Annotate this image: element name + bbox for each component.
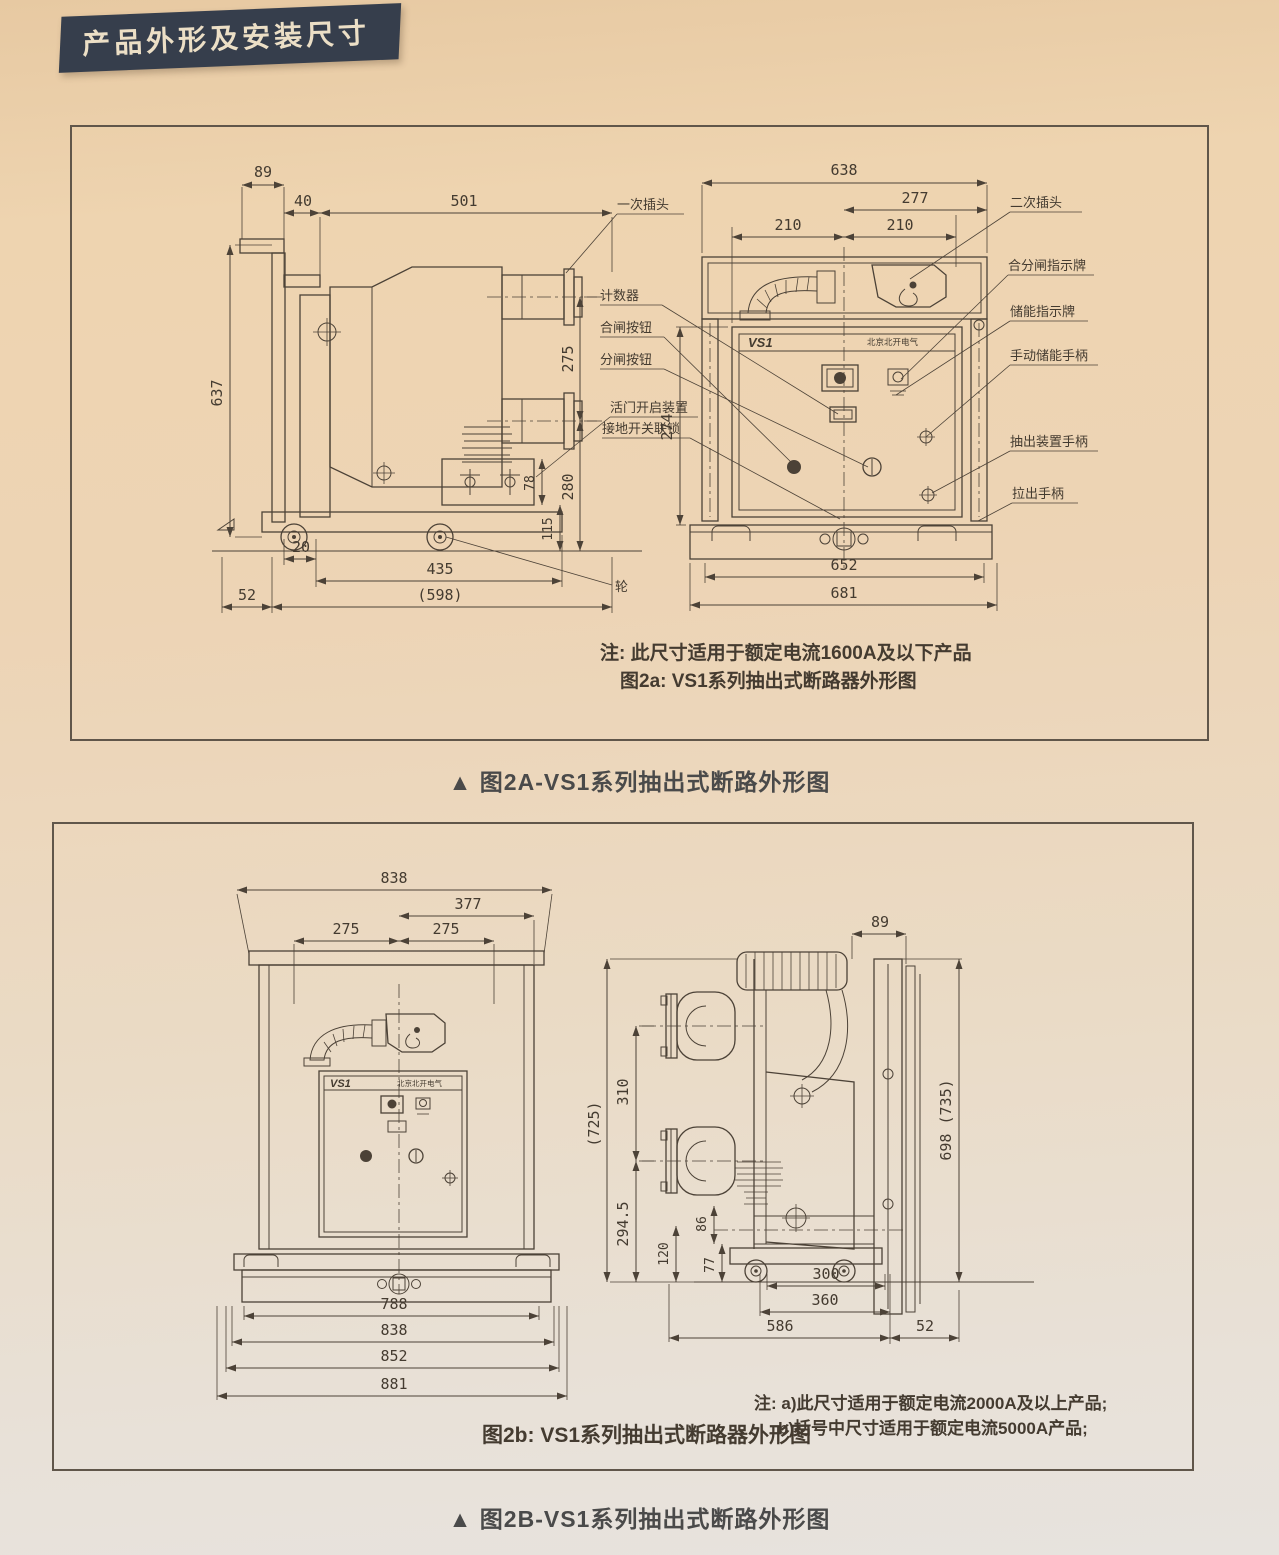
label-secondary-plug: 二次插头	[1010, 195, 1062, 210]
dim-86: 86	[695, 1216, 710, 1232]
figure-2b-frame: 838 377 275 275	[52, 822, 1194, 1471]
catalog-page: 产品外形及安装尺寸	[0, 0, 1279, 1555]
label-primary-plug: 一次插头	[617, 197, 669, 212]
fig2b-inner-caption: 图2b: VS1系列抽出式断路器外形图	[482, 1423, 811, 1447]
dim-698-735: 698 (735)	[937, 1079, 955, 1160]
panel-brand-b: 北京北开电气	[397, 1078, 442, 1088]
dim-725: (725)	[585, 1101, 603, 1146]
dim-210-left: 210	[774, 216, 801, 234]
fig2b-lower-bushing	[642, 1127, 766, 1195]
panel-brand: 北京北开电气	[867, 337, 919, 347]
dim-501: 501	[450, 192, 477, 210]
label-charge-indicator: 储能指示牌	[1010, 304, 1075, 319]
dim-40: 40	[294, 192, 312, 210]
label-wheel: 轮	[446, 537, 628, 594]
panel-logo: VS1	[748, 335, 773, 350]
dim-52: 52	[238, 586, 256, 604]
figure-2a-caption: ▲ 图2A-VS1系列抽出式断路外形图	[0, 763, 1279, 797]
label-open-button: 分闸按钮	[600, 352, 652, 367]
dim-120: 120	[657, 1242, 672, 1265]
fig2b-plug	[386, 1014, 445, 1052]
section-title-banner: 产品外形及安装尺寸	[59, 3, 401, 73]
fig2a-side-dimensions: 89 40 501 637 275 280 78	[208, 163, 612, 613]
dim-788: 788	[380, 1295, 407, 1313]
figure-2b-caption: ▲ 图2B-VS1系列抽出式断路外形图	[0, 1500, 1279, 1534]
fig2b-side-vertical-dimensions: (725) 310 294.5 86 120 77 698 (735)	[585, 959, 962, 1282]
dim-52-b: 52	[916, 1317, 934, 1335]
dim-115: 115	[541, 517, 556, 540]
fig2a-right-labels: 二次插头 合分闸指示牌 储能指示牌 手动储能手柄 抽出装置手柄 拉出手柄	[896, 195, 1098, 521]
fig2a-insulator-ribs	[462, 427, 512, 462]
fig2b-chassis	[694, 1248, 1034, 1282]
dim-78: 78	[523, 475, 538, 491]
fig2a-base	[690, 525, 992, 559]
fig2a-front-view: VS1 北京北开电气	[658, 161, 997, 611]
label-counter: 计数器	[600, 288, 639, 303]
fig2a-note-line1: 注: 此尺寸适用于额定电流1600A及以下产品	[600, 641, 972, 664]
dim-77: 77	[703, 1257, 718, 1273]
section-title: 产品外形及安装尺寸	[81, 11, 370, 63]
fig2b-note-line1: 注: a)此尺寸适用于额定电流2000A及以上产品;	[754, 1393, 1107, 1413]
label-pullout-handle: 拉出手柄	[1012, 486, 1064, 501]
label-close-button: 合闸按钮	[600, 320, 652, 335]
fig2a-bolt-marks	[460, 469, 520, 495]
label-withdraw-device-handle: 抽出装置手柄	[1010, 434, 1088, 449]
figure-2b-drawing: 838 377 275 275	[54, 824, 1188, 1465]
dim-280: 280	[559, 473, 577, 500]
figure-2a-frame: 89 40 501 637 275 280 78	[70, 125, 1209, 741]
dim-275-right: 275	[432, 920, 459, 938]
fig2b-note-line2: b)括号中尺寸适用于额定电流5000A产品;	[778, 1418, 1088, 1438]
dim-377: 377	[454, 895, 481, 913]
fig2b-front-bottom-dimensions: 788 838 852 881	[217, 1295, 567, 1400]
fig2a-note-line2: 图2a: VS1系列抽出式断路器外形图	[620, 669, 917, 692]
dim-275: 275	[559, 345, 577, 372]
fig2b-upper-bushing	[642, 992, 766, 1060]
dim-638: 638	[830, 161, 857, 179]
dim-360: 360	[811, 1291, 838, 1309]
fig2a-panel-controls	[787, 365, 937, 504]
dim-89-b: 89	[871, 913, 889, 931]
dim-20: 20	[292, 538, 310, 556]
dim-637: 637	[208, 379, 226, 406]
dim-435: 435	[426, 560, 453, 578]
label-manual-charge-handle: 手动储能手柄	[1010, 348, 1088, 363]
dim-838-top: 838	[380, 869, 407, 887]
panel-logo-b: VS1	[330, 1078, 351, 1090]
dim-852: 852	[380, 1347, 407, 1365]
dim-210-right: 210	[886, 216, 913, 234]
fig2b-corrugations	[735, 1162, 783, 1204]
dim-275-left: 275	[332, 920, 359, 938]
label-close-open-indicator: 合分闸指示牌	[1008, 258, 1086, 273]
dim-881: 881	[380, 1375, 407, 1393]
dim-300: 300	[812, 1265, 839, 1283]
dim-310: 310	[614, 1078, 632, 1105]
fig2b-side-view: 89	[585, 913, 1034, 1344]
dim-294-5: 294.5	[614, 1201, 632, 1246]
dim-89: 89	[254, 163, 272, 181]
dim-652: 652	[830, 556, 857, 574]
dim-274: 274	[658, 413, 676, 440]
fig2b-hose	[304, 1020, 386, 1066]
fig2a-side-view: 89 40 501 637 275 280 78	[208, 163, 642, 613]
dim-586: 586	[766, 1317, 793, 1335]
fig2a-plug	[872, 265, 946, 307]
fig2b-front-top-dimensions: 838 377 275 275	[237, 869, 552, 1004]
dim-277: 277	[901, 189, 928, 207]
label-shutter-opening-device: 活门开启装置	[610, 400, 688, 415]
dim-598: (598)	[417, 586, 462, 604]
fig2b-front-view: 838 377 275 275	[217, 869, 567, 1400]
wheel-label: 轮	[615, 579, 628, 594]
dim-838-bottom: 838	[380, 1321, 407, 1339]
fig2b-panel-controls	[360, 1096, 458, 1186]
figure-2a-drawing: 89 40 501 637 275 280 78	[72, 127, 1203, 735]
dim-681: 681	[830, 584, 857, 602]
